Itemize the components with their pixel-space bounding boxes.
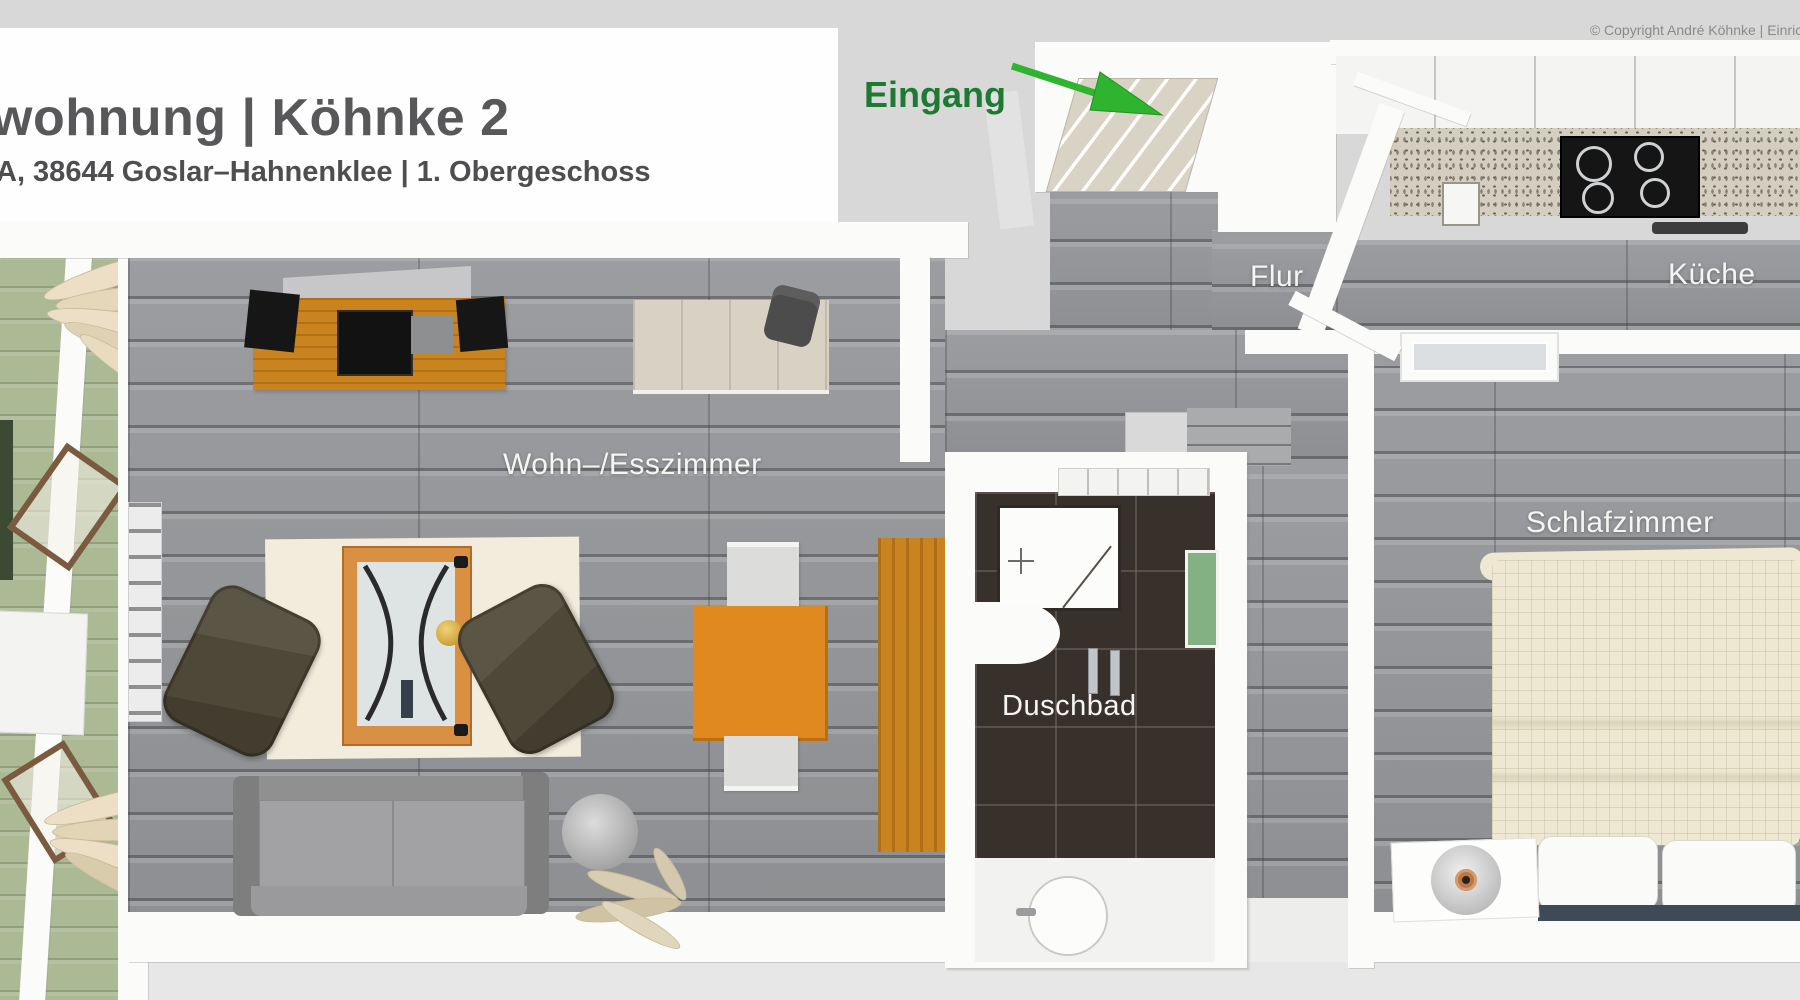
dining-chair [727, 542, 799, 611]
window-glass [1412, 342, 1548, 372]
glass-table [342, 546, 472, 746]
balcony-table [0, 610, 88, 735]
av-receiver [411, 316, 453, 354]
page-title: wohnung | Köhnke 2 [0, 88, 510, 148]
outside-bottom-band [0, 958, 1800, 1000]
side-table-round [562, 794, 638, 870]
living-right-pillar [900, 256, 930, 462]
bedroom-window [1400, 332, 1559, 382]
burner-icon [1582, 182, 1614, 214]
table-hinge [454, 724, 468, 736]
room-label-schlafzimmer: Schlafzimmer [1526, 506, 1714, 540]
radiator [128, 502, 162, 722]
chrome-fitting [1088, 648, 1098, 694]
room-label-duschbad: Duschbad [1002, 690, 1137, 723]
glass-table-top [357, 562, 455, 726]
speaker-icon [244, 290, 300, 353]
room-label-wohnzimmer: Wohn–/Esszimmer [503, 448, 762, 482]
burner-icon [1634, 142, 1664, 172]
dining-table [693, 606, 828, 741]
nightstand [1391, 837, 1540, 922]
towel-rail [1185, 550, 1219, 648]
dining-chair [724, 736, 798, 791]
header-panel: wohnung | Köhnke 2 A, 38644 Goslar–Hahne… [0, 28, 838, 222]
nook-kitchen-wall [1218, 42, 1336, 232]
cooktop [1560, 136, 1700, 218]
page-subtitle: A, 38644 Goslar–Hahnenklee | 1. Obergesc… [0, 156, 650, 189]
entrance-arrow-icon [1000, 52, 1170, 127]
hall-floor-lower [1245, 460, 1348, 912]
oven-handle [1652, 222, 1748, 234]
table-leg-curves [357, 562, 455, 726]
entrance-label: Eingang [864, 74, 1006, 116]
bathroom-vanity [1058, 468, 1210, 496]
bedroom-left-wall [1348, 348, 1374, 968]
bed-pillow [1662, 840, 1796, 914]
living-top-wall [0, 222, 968, 258]
washbasin [1028, 876, 1108, 956]
bed-frame [1538, 905, 1800, 921]
sofa-seat [393, 800, 525, 890]
bed-pillow [1538, 836, 1658, 910]
floorplan-canvas: Wohn–/Esszimmer Flur Küche Schlafzimmer [0, 0, 1800, 1000]
shower-faucet-icon [1008, 548, 1034, 574]
shower-tray [997, 505, 1121, 611]
kitchen-sink [1442, 182, 1480, 226]
room-label-flur: Flur [1250, 260, 1304, 294]
basin-faucet-icon [1016, 908, 1036, 916]
speaker-icon [456, 296, 508, 352]
sofa-seat [259, 800, 393, 890]
bed-blanket [1492, 560, 1800, 845]
tv-screen [337, 310, 413, 376]
copyright-text: © Copyright André Köhnke | Einrich [1590, 22, 1800, 38]
wood-wardrobe [878, 538, 950, 852]
hall-floor-vertical [1050, 185, 1218, 335]
table-hinge [454, 556, 468, 568]
balcony-plant [0, 420, 13, 580]
hall-lower-door [1245, 898, 1348, 962]
sofa-front-edge [251, 886, 527, 916]
burner-icon [1576, 146, 1612, 182]
living-bottom-wall [128, 912, 968, 962]
room-label-kueche: Küche [1668, 258, 1756, 292]
toilet [972, 602, 1060, 664]
shower-door-line [1062, 546, 1112, 609]
sofa [233, 772, 549, 918]
burner-icon [1640, 178, 1670, 208]
